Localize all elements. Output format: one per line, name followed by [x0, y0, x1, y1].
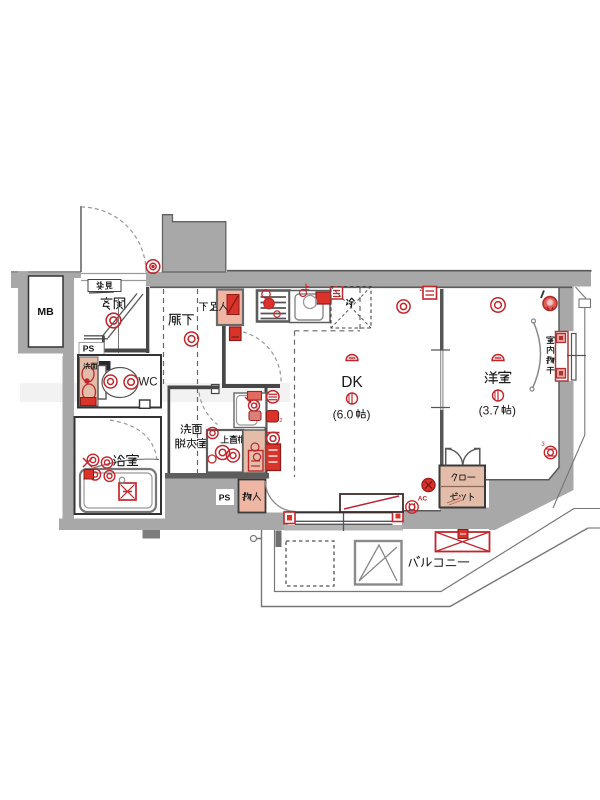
svg-text:(3.7: (3.7: [479, 404, 500, 418]
svg-text:MB: MB: [37, 306, 54, 318]
svg-text:WC: WC: [138, 377, 157, 389]
svg-text:(6.0: (6.0: [333, 408, 354, 422]
svg-text:AC: AC: [418, 496, 428, 503]
svg-text:): ): [367, 408, 371, 422]
svg-text:DK: DK: [341, 374, 363, 391]
svg-text:PS: PS: [83, 344, 95, 354]
svg-text:): ): [512, 404, 516, 418]
svg-text:2: 2: [279, 418, 282, 424]
svg-text:PS: PS: [219, 493, 231, 503]
